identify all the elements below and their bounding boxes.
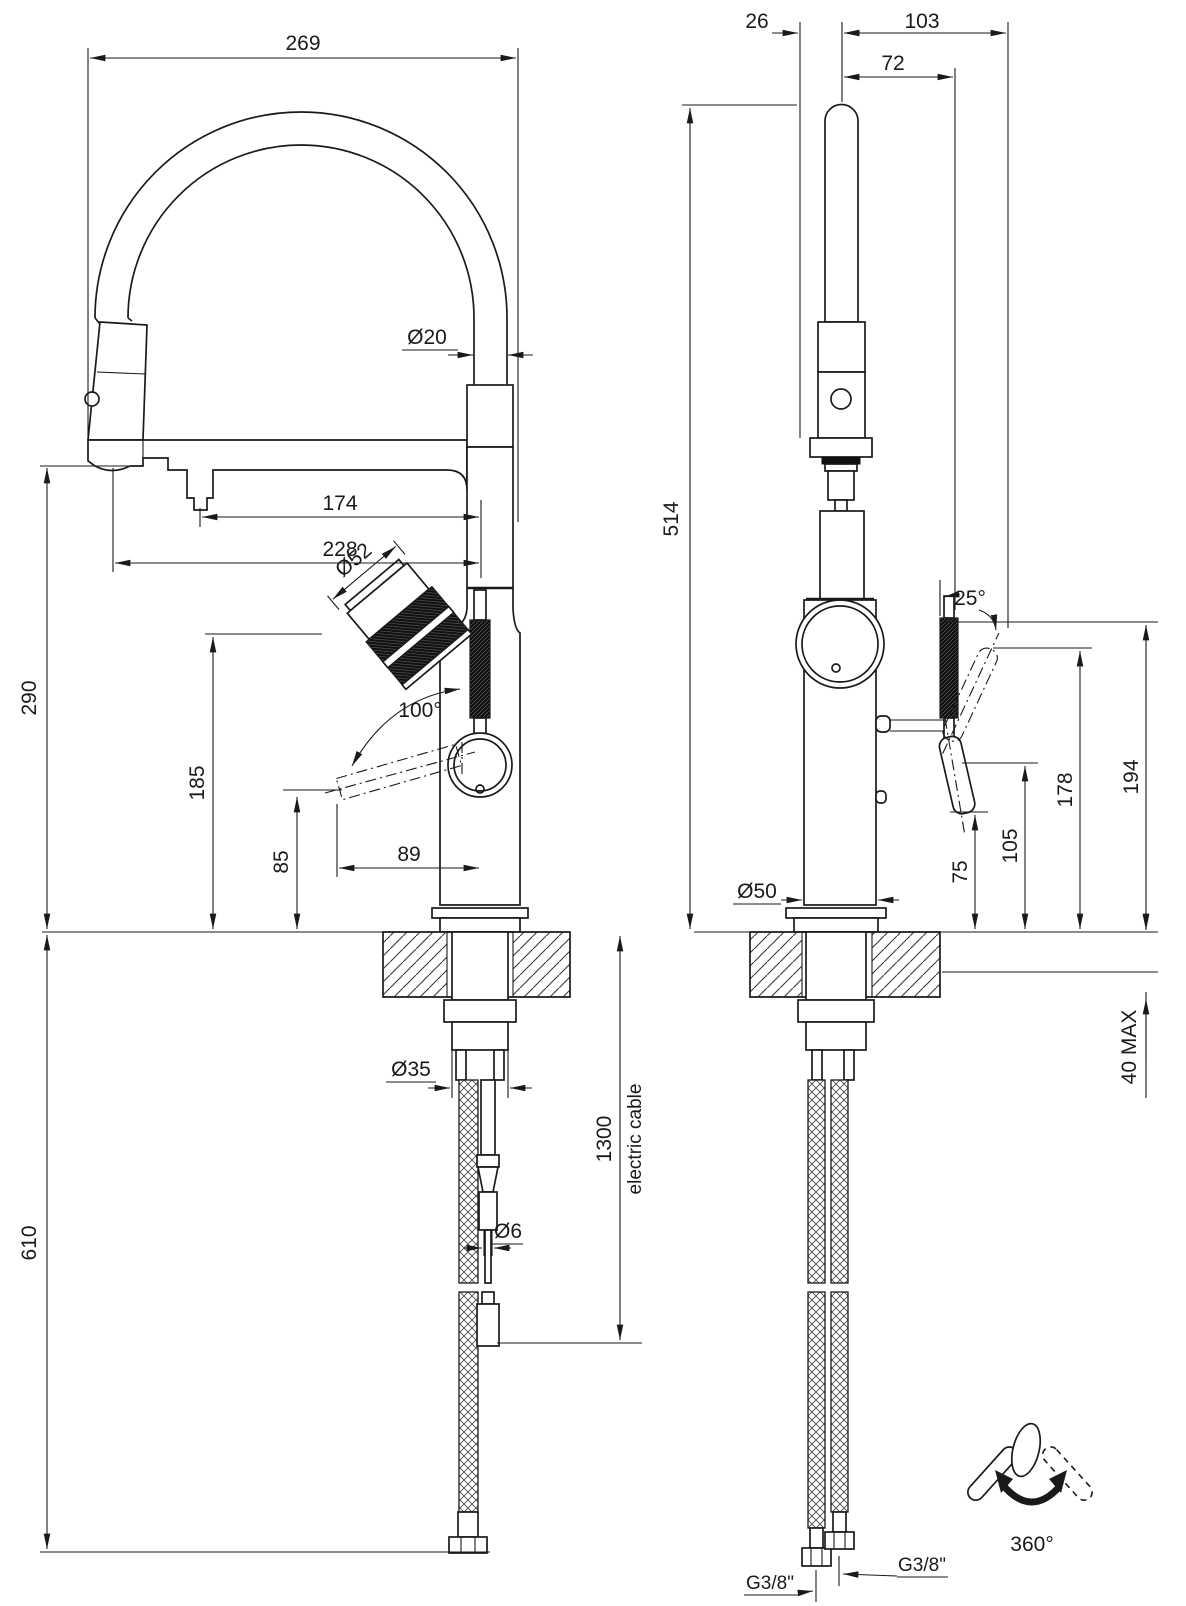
- handle-knob-icon: [1007, 1421, 1045, 1480]
- dim-360-label: 360°: [1010, 1533, 1053, 1556]
- rotation-arrow: [1002, 1484, 1060, 1502]
- faucet-dimension-drawing: Ø52: [0, 0, 1186, 1606]
- spray-head-side: [810, 322, 872, 511]
- dim-514-label: 514: [660, 501, 683, 536]
- dim-178-label: 178: [1054, 772, 1077, 807]
- electric-cable-label: electric cable: [625, 1084, 646, 1195]
- base-ring-front: [440, 918, 520, 932]
- dim-85-label: 85: [270, 850, 293, 873]
- dim-1300-label: 1300: [593, 1116, 616, 1163]
- cable-plug: [477, 1304, 499, 1346]
- hose-side: [825, 105, 858, 323]
- dim-194-label: 194: [1120, 759, 1143, 794]
- electric-cable: [477, 1080, 499, 1346]
- spray-button-side: [831, 389, 851, 409]
- supply-hose-left: [808, 1080, 825, 1283]
- spray-button: [85, 392, 99, 406]
- hose-socket: [467, 385, 513, 447]
- ring-handle-front: [448, 733, 512, 797]
- g38-right-label: G3/8": [898, 1555, 946, 1576]
- lock-nut-front: [444, 1000, 516, 1022]
- dim-75-label: 75: [949, 860, 972, 883]
- dim-d20-label: Ø20: [407, 326, 447, 349]
- upper-column-side: [820, 511, 864, 600]
- dim-d50-label: Ø50: [737, 880, 777, 903]
- dim-105-label: 105: [999, 828, 1022, 863]
- knurled-grip-front: [470, 620, 490, 718]
- dim-100deg-label: 100°: [398, 699, 441, 722]
- dim-610-label: 610: [18, 1225, 41, 1260]
- spray-head-docked: [85, 322, 147, 440]
- under-counter-side: [798, 932, 874, 1566]
- hose-nut-left: [802, 1548, 831, 1566]
- threaded-shank-front: [452, 932, 508, 1000]
- dim-25deg-label: 25°: [954, 587, 986, 610]
- dock-collar-side: [810, 438, 872, 457]
- base-ring-side: [794, 918, 878, 932]
- wand-bracket-side: [876, 716, 946, 803]
- sprayer-wand-side: [940, 596, 958, 738]
- lock-nut-side: [798, 1000, 874, 1022]
- supply-hose-front: [459, 1080, 478, 1283]
- spout-arm: [88, 440, 467, 510]
- front-view: Ø52: [85, 112, 570, 1553]
- dimensions: 269 Ø20 174 228 100° 290 185 85 89 610 Ø…: [18, 10, 1158, 1602]
- technical-drawing-page: Ø52: [0, 0, 1186, 1606]
- hose-nut-front: [449, 1537, 487, 1553]
- dim-103-label: 103: [904, 10, 939, 33]
- dim-185-label: 185: [186, 765, 209, 800]
- hose-nut-right: [825, 1532, 854, 1549]
- dim-174-label: 174: [322, 492, 357, 515]
- g38-left-label: G3/8": [746, 1573, 794, 1594]
- side-view: [750, 105, 1008, 1567]
- supply-hose-right: [831, 1080, 848, 1283]
- threaded-shank-side: [806, 932, 866, 1000]
- base-plate-side: [786, 908, 886, 918]
- dim-269-label: 269: [285, 32, 320, 55]
- dim-26-label: 26: [745, 10, 768, 33]
- dim-89-label: 89: [397, 843, 420, 866]
- dim-290-label: 290: [18, 680, 41, 715]
- hose-fitting-front: [458, 1512, 478, 1537]
- dim-40max-label: 40 MAX: [1118, 1010, 1141, 1085]
- dim-228-label: 228: [322, 538, 357, 561]
- swivel-360-icon: 360°: [965, 1421, 1096, 1556]
- ring-handle-side: [796, 600, 884, 688]
- base-plate-front: [432, 908, 528, 918]
- dim-d35-label: Ø35: [391, 1058, 431, 1081]
- dim-72-label: 72: [881, 52, 904, 75]
- dim-d6-label: Ø6: [494, 1220, 522, 1243]
